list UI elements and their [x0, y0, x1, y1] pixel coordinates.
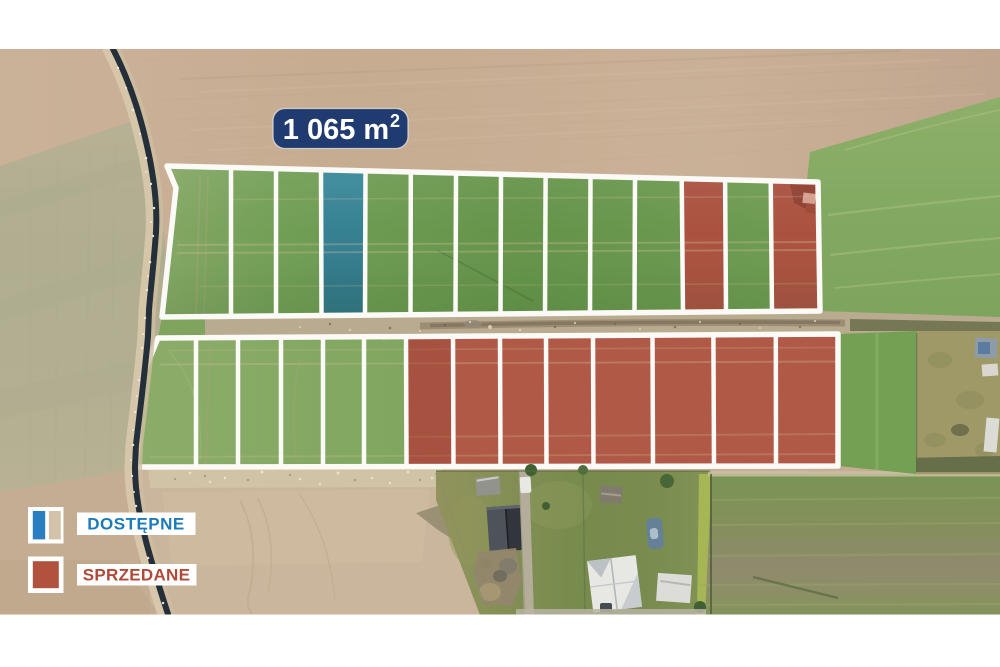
svg-text:SPRZEDANE: SPRZEDANE	[83, 566, 191, 585]
svg-text:2: 2	[390, 111, 400, 131]
svg-text:DOSTĘPNE: DOSTĘPNE	[87, 515, 185, 534]
svg-text:1 065 m: 1 065 m	[283, 114, 389, 146]
